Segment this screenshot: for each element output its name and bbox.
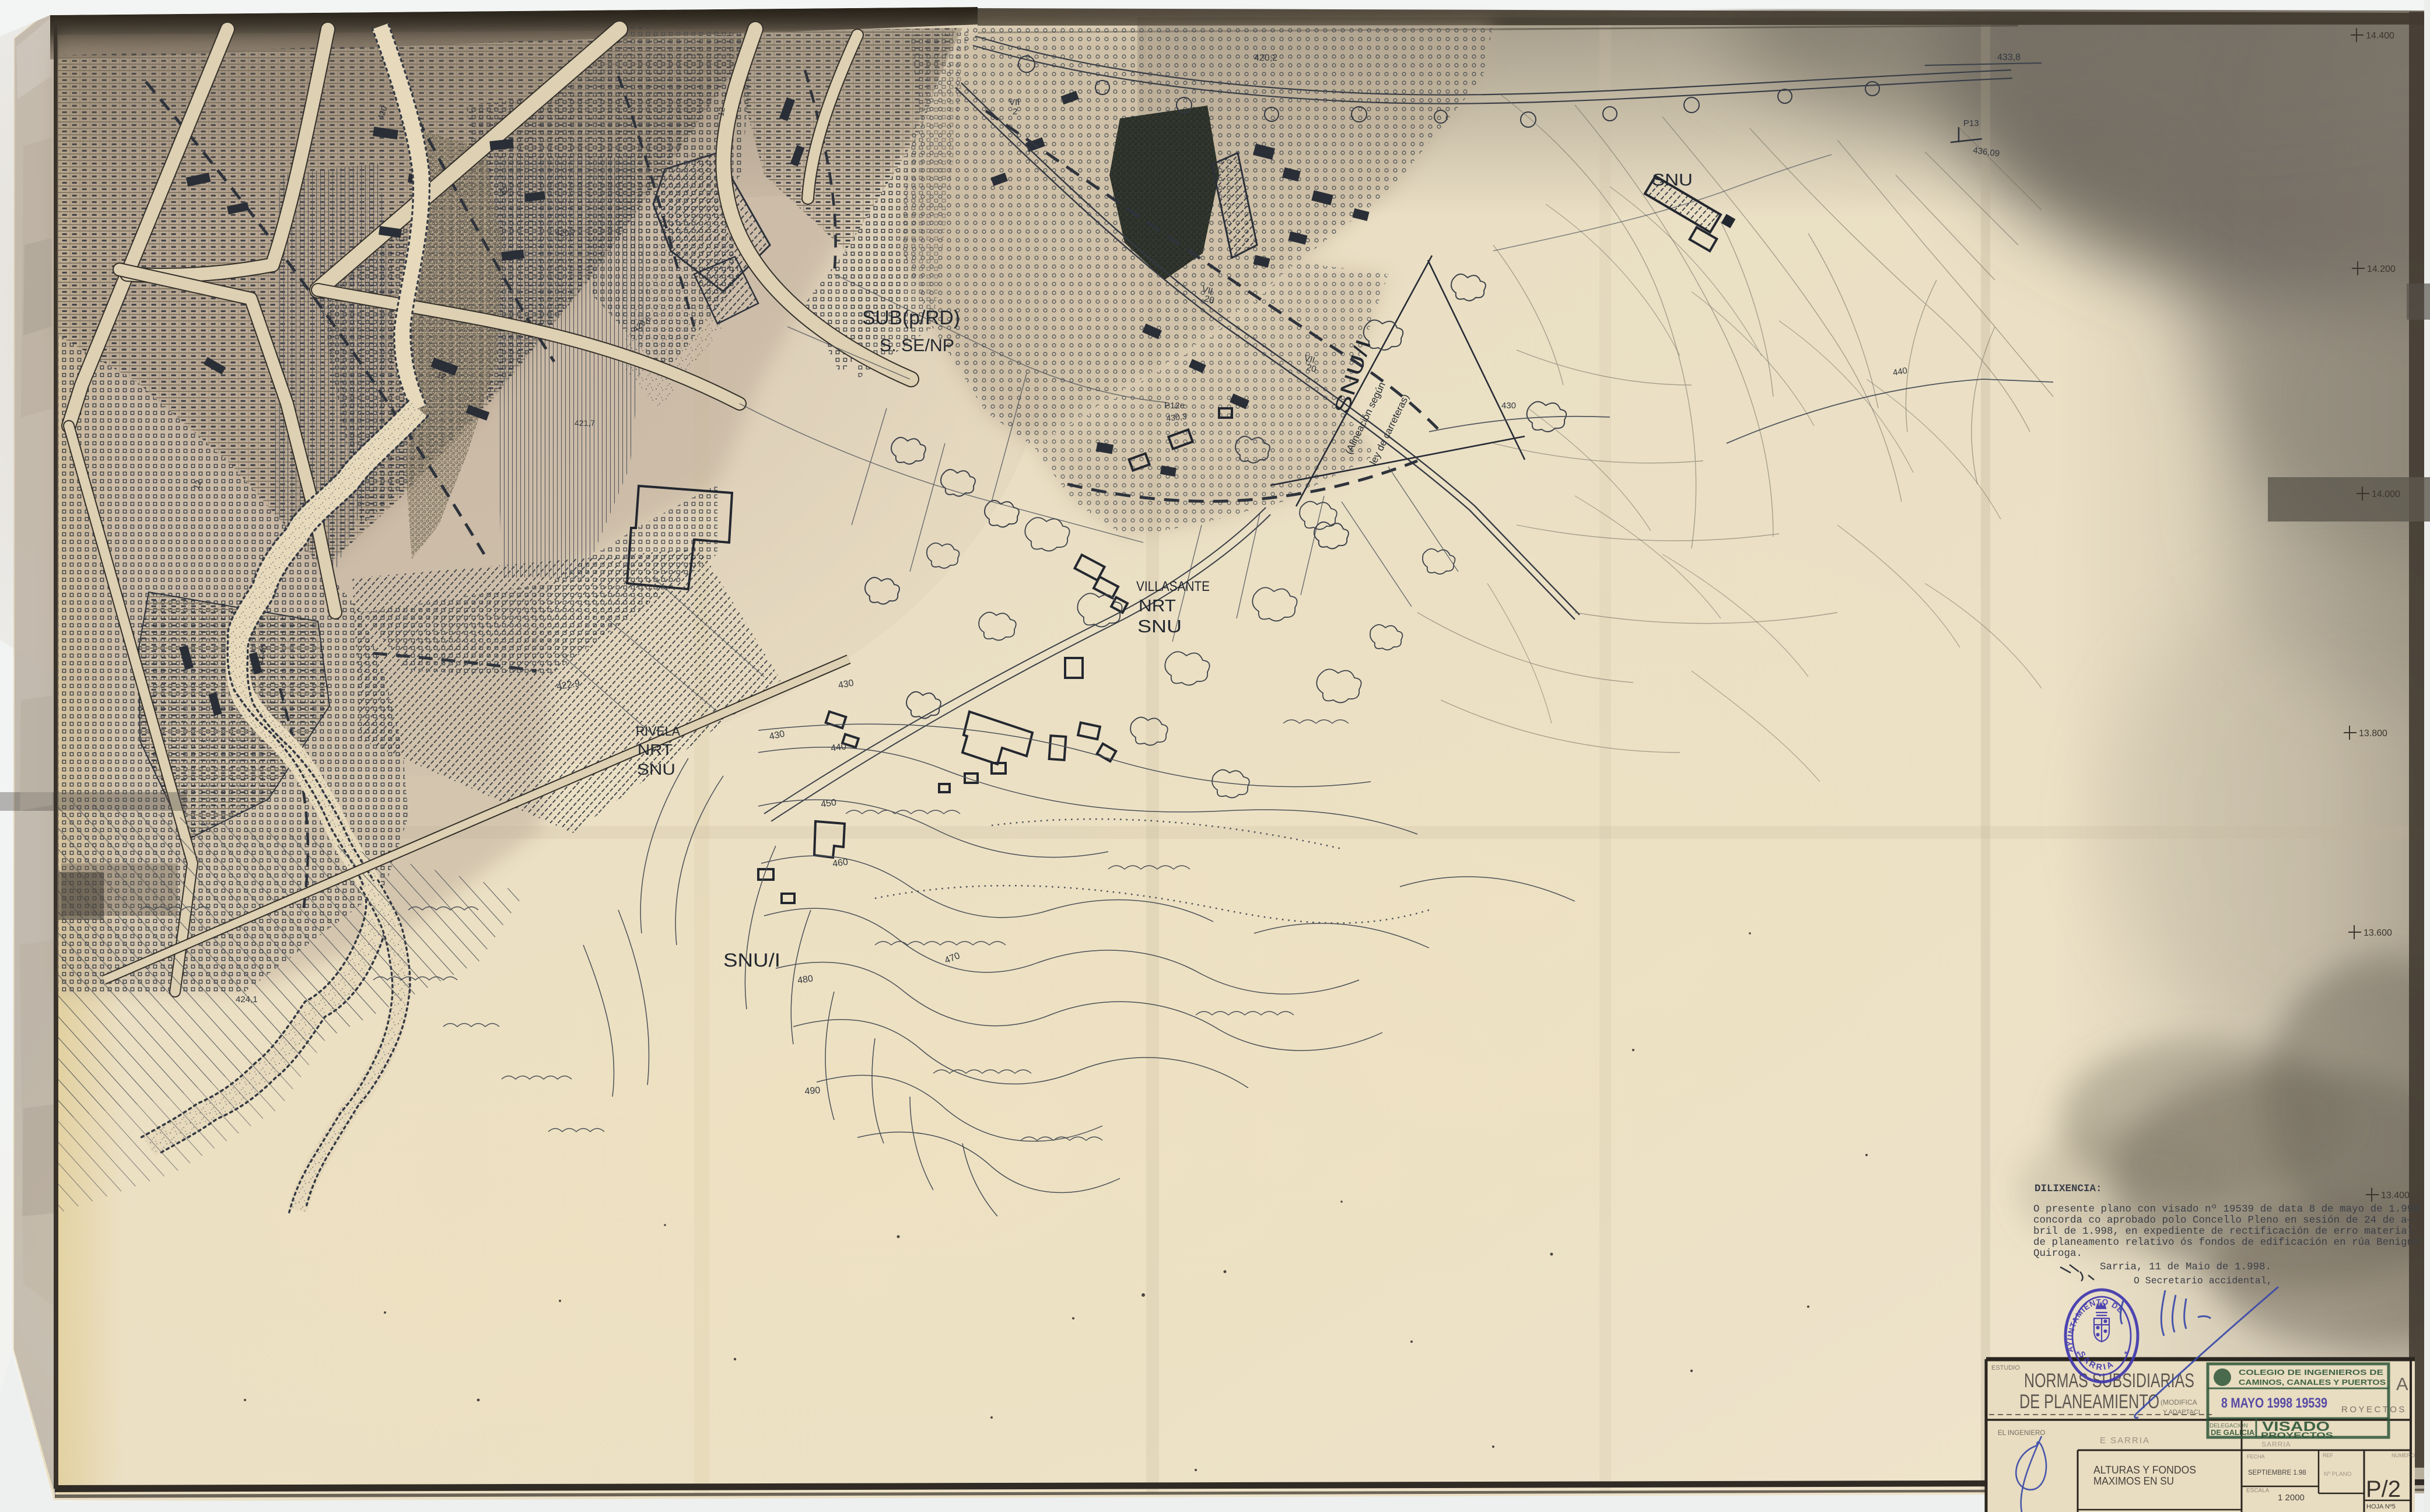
svg-text:NRT: NRT [638, 741, 673, 758]
svg-text:PROYECTOS: PROYECTOS [2261, 1430, 2333, 1440]
svg-text:P13: P13 [1963, 118, 1979, 128]
svg-text:S. SE/NP: S. SE/NP [880, 336, 954, 355]
svg-text:490: 490 [804, 1086, 821, 1097]
svg-text:E SARRIA: E SARRIA [2100, 1436, 2150, 1445]
svg-text:DE PLANEAMIENTO: DE PLANEAMIENTO [2019, 1391, 2159, 1413]
svg-text:Quiroga.: Quiroga. [2033, 1248, 2082, 1259]
svg-text:14.400: 14.400 [2366, 31, 2394, 41]
svg-text:concorda co aprobado polo Conc: concorda co aprobado polo Concello Pleno… [2033, 1214, 2414, 1226]
svg-text:Y ADAPTACI: Y ADAPTACI [2163, 1409, 2200, 1416]
svg-text:de planeamento relativo ós fon: de planeamento relativo ós fondos de edi… [2033, 1237, 2420, 1248]
svg-text:ESCALA: ESCALA [2246, 1487, 2270, 1494]
svg-text:P/2: P/2 [2366, 1476, 2401, 1502]
svg-text:SNU: SNU [1652, 171, 1693, 190]
svg-text:ESTUDIO: ESTUDIO [1991, 1364, 2020, 1371]
svg-text:14.200: 14.200 [2367, 264, 2396, 274]
svg-text:421,7: 421,7 [575, 418, 595, 428]
svg-text:SUB(p/RD): SUB(p/RD) [862, 307, 960, 329]
svg-text:REF: REF [2323, 1452, 2334, 1458]
svg-text:420,7: 420,7 [555, 228, 576, 237]
svg-text:8 MAYO 1998 19539: 8 MAYO 1998 19539 [2221, 1395, 2327, 1411]
svg-text:RIVELA: RIVELA [636, 724, 680, 738]
svg-text:✶: ✶ [2075, 1350, 2081, 1357]
svg-text:O presente plano con visado nº: O presente plano con visado nº 19539 de … [2033, 1203, 2420, 1215]
svg-text:13.800: 13.800 [2359, 729, 2387, 738]
svg-text:12: 12 [716, 106, 726, 117]
svg-text:Nº PLANO: Nº PLANO [2324, 1471, 2352, 1478]
svg-text:P12e: P12e [1164, 401, 1185, 411]
svg-text:SEPTIEMBRE 1.98: SEPTIEMBRE 1.98 [2248, 1469, 2306, 1476]
svg-text:433,8: 433,8 [1997, 52, 2021, 62]
svg-text:NUMERO: NUMERO [2392, 1452, 2415, 1458]
svg-text:13.600: 13.600 [2364, 928, 2392, 938]
svg-text:SNU: SNU [637, 761, 675, 778]
svg-text:VII: VII [1009, 97, 1020, 107]
svg-text:A: A [2396, 1374, 2408, 1394]
svg-text:(MODIFICA: (MODIFICA [2161, 1398, 2197, 1406]
svg-text:MAXIMOS EN SU: MAXIMOS EN SU [2093, 1475, 2174, 1487]
svg-text:DILIXENCIA:: DILIXENCIA: [2035, 1183, 2102, 1195]
svg-text:430: 430 [1501, 401, 1516, 411]
svg-text:SNU: SNU [1137, 616, 1182, 636]
svg-text:420,2: 420,2 [1254, 53, 1277, 63]
svg-text:DE GALICIA: DE GALICIA [2211, 1428, 2255, 1437]
svg-text:1 2000: 1 2000 [2278, 1493, 2305, 1503]
svg-text:NRT: NRT [1139, 597, 1176, 615]
svg-text:CAMINOS, CANALES Y PUERTOS: CAMINOS, CANALES Y PUERTOS [2239, 1378, 2386, 1387]
svg-text:bril de 1.998, en expediente d: bril de 1.998, en expediente de rectific… [2033, 1226, 2413, 1237]
svg-text:2: 2 [1013, 107, 1017, 117]
svg-text:ALTURAS Y FONDOS: ALTURAS Y FONDOS [2093, 1464, 2196, 1476]
svg-text:✶: ✶ [2123, 1350, 2128, 1357]
svg-text:EL INGENIERO: EL INGENIERO [1998, 1430, 2045, 1437]
svg-text:424,1: 424,1 [236, 995, 258, 1005]
svg-text:SARRIA: SARRIA [2261, 1440, 2291, 1448]
svg-text:HOJA Nº5: HOJA Nº5 [2366, 1503, 2396, 1510]
svg-text:ROYECTOS: ROYECTOS [2341, 1405, 2407, 1415]
svg-text:SNU/I: SNU/I [723, 950, 780, 971]
svg-text:FECHA: FECHA [2247, 1454, 2265, 1459]
svg-text:Sarria, 11 de Maio de 1.998.: Sarria, 11 de Maio de 1.998. [2100, 1261, 2271, 1273]
svg-text:COLEGIO DE INGENIEROS DE: COLEGIO DE INGENIEROS DE [2239, 1368, 2383, 1377]
svg-text:13.400: 13.400 [2381, 1191, 2410, 1200]
svg-text:VILLASANTE: VILLASANTE [1136, 579, 1210, 594]
svg-text:14.000: 14.000 [2372, 489, 2400, 499]
svg-text:O Secretario accidental,: O Secretario accidental, [2134, 1275, 2273, 1286]
